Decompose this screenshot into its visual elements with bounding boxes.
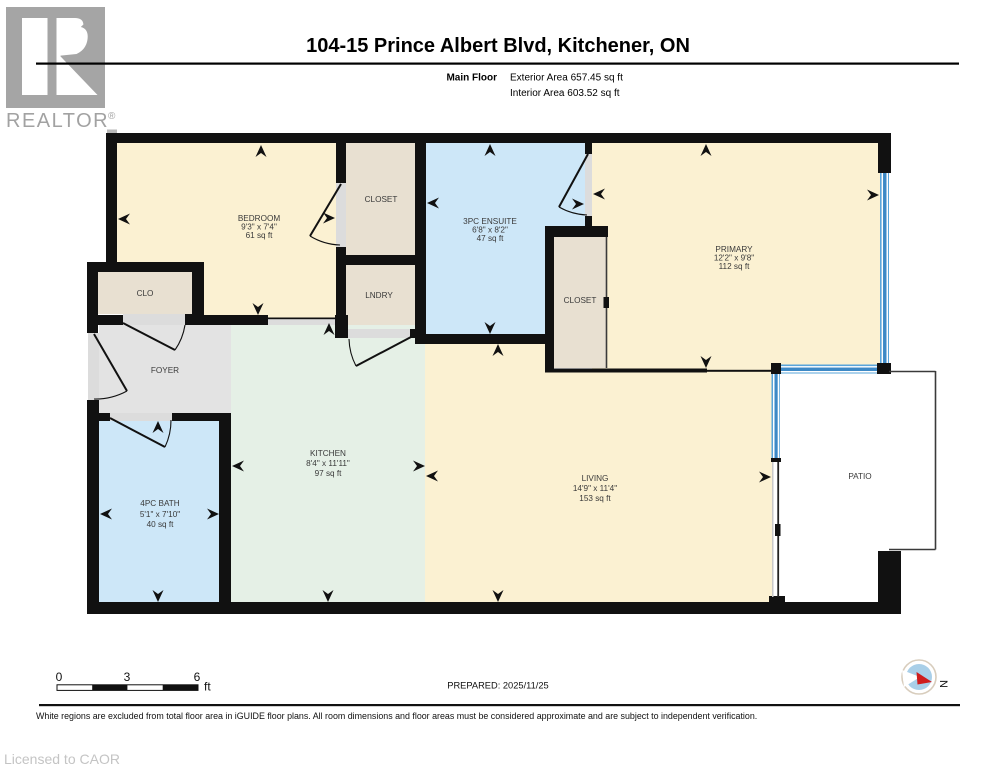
svg-text:PREPARED: 2025/11/25: PREPARED: 2025/11/25	[447, 681, 548, 691]
svg-text:97 sq ft: 97 sq ft	[315, 469, 343, 478]
svg-text:CLO: CLO	[137, 289, 154, 298]
svg-text:153 sq ft: 153 sq ft	[579, 494, 611, 503]
svg-text:6: 6	[194, 670, 201, 684]
svg-text:LIVING: LIVING	[582, 474, 609, 483]
svg-text:0: 0	[56, 670, 63, 684]
svg-text:Exterior Area 657.45 sq ft: Exterior Area 657.45 sq ft	[510, 73, 623, 84]
svg-text:ft: ft	[204, 680, 211, 694]
svg-text:CLOSET: CLOSET	[365, 195, 398, 204]
svg-text:REALTOR: REALTOR	[6, 110, 109, 132]
svg-text:KITCHEN: KITCHEN	[310, 449, 346, 458]
svg-text:Main Floor: Main Floor	[446, 73, 497, 84]
svg-text:Licensed to CAOR: Licensed to CAOR	[4, 751, 120, 767]
svg-text:61 sq ft: 61 sq ft	[246, 231, 274, 240]
svg-text:®: ®	[108, 111, 116, 122]
svg-text:8'4" x 11'11": 8'4" x 11'11"	[306, 459, 350, 468]
svg-text:3: 3	[124, 670, 131, 684]
svg-text:14'9" x 11'4": 14'9" x 11'4"	[573, 484, 617, 493]
svg-text:47 sq ft: 47 sq ft	[477, 234, 505, 243]
svg-text:104-15 Prince Albert Blvd, Kit: 104-15 Prince Albert Blvd, Kitchener, ON	[306, 35, 690, 57]
svg-text:White regions are excluded fro: White regions are excluded from total fl…	[36, 711, 757, 721]
svg-text:LNDRY: LNDRY	[365, 291, 393, 300]
svg-text:CLOSET: CLOSET	[564, 296, 597, 305]
svg-text:40 sq ft: 40 sq ft	[147, 520, 175, 529]
svg-text:PATIO: PATIO	[848, 472, 871, 481]
svg-text:FOYER: FOYER	[151, 366, 179, 375]
svg-text:112 sq ft: 112 sq ft	[719, 262, 751, 271]
svg-text:4PC BATH: 4PC BATH	[140, 499, 180, 508]
svg-text:N: N	[937, 680, 949, 688]
svg-text:Interior Area 603.52 sq ft: Interior Area 603.52 sq ft	[510, 88, 620, 99]
svg-text:5'1" x 7'10": 5'1" x 7'10"	[140, 510, 180, 519]
